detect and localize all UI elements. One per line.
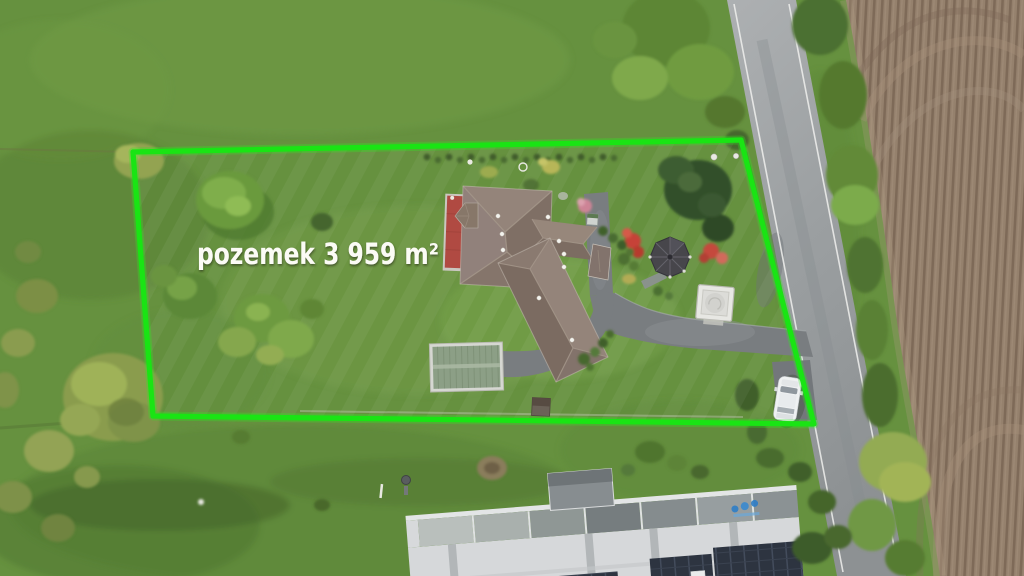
garage [429, 342, 503, 392]
roof-vent-box [691, 571, 706, 576]
area-label: pozemek 3 959 m² [197, 237, 439, 271]
shed [532, 398, 551, 417]
roof-dormer [548, 469, 615, 511]
scene-svg: pozemek 3 959 m² [0, 0, 1024, 576]
aerial-photo: pozemek 3 959 m² [0, 0, 1024, 576]
